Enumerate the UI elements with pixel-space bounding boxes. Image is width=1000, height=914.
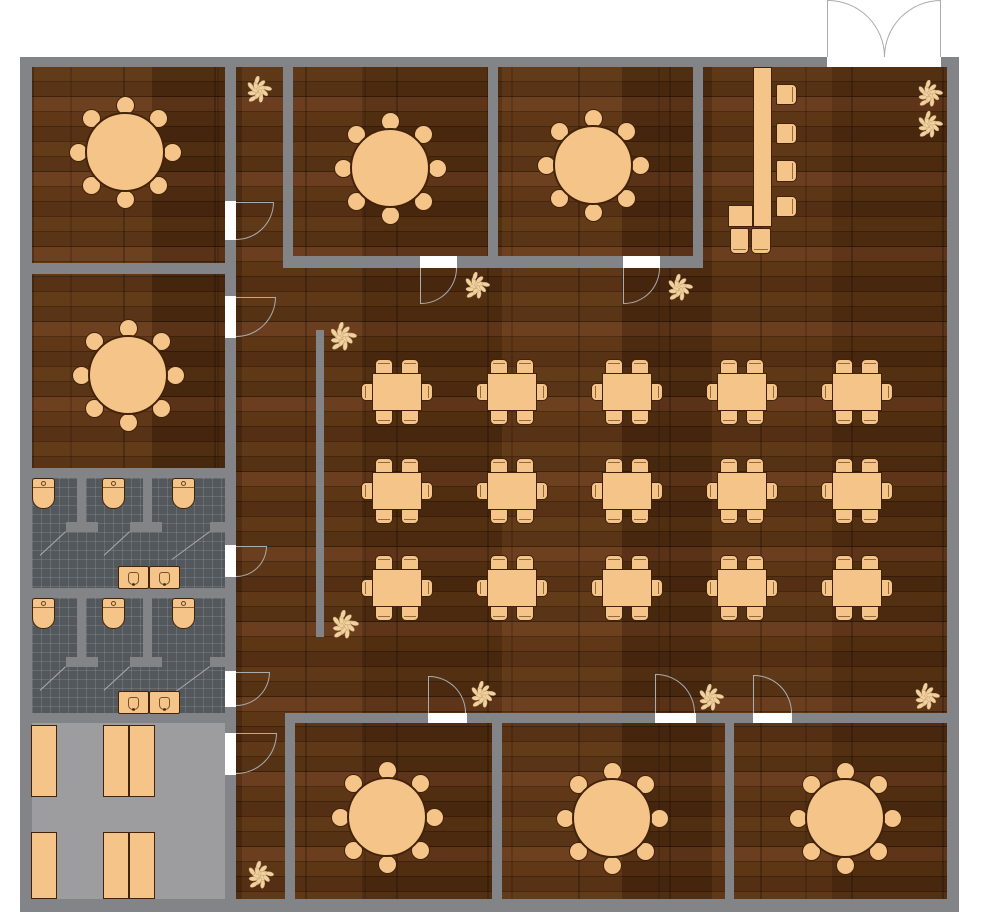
chair[interactable]	[116, 190, 135, 209]
dining-table-6-seat[interactable]	[340, 441, 454, 541]
kitchen-shelf[interactable]	[129, 832, 155, 899]
private-room-a-table[interactable]	[332, 110, 448, 226]
chair-back-line	[608, 420, 620, 421]
chair-back-line	[749, 420, 761, 421]
toilet-tank-line	[33, 607, 54, 608]
round-table-top	[85, 112, 165, 192]
bottom-rooms-north-wall-2	[467, 713, 655, 723]
chair[interactable]	[650, 809, 669, 828]
entry-door-right-leaf-leaf[interactable]	[940, 0, 941, 57]
chair-back-line	[634, 363, 646, 364]
chair-back-line	[428, 386, 429, 398]
chair-back-line	[864, 462, 876, 463]
chair-back-line	[888, 582, 889, 594]
room-23-divider-wall	[725, 723, 734, 899]
chair-back-line	[825, 386, 826, 398]
toilet-tank-line	[173, 487, 194, 488]
toilet-flush-knob	[41, 481, 46, 486]
dining-table-6-seat[interactable]	[570, 441, 684, 541]
chair-back-line	[792, 126, 793, 141]
toilet-flush-knob	[181, 601, 186, 606]
sink-faucet-dot	[163, 708, 166, 711]
r2-stall-front-1	[66, 657, 98, 667]
chair-back-line	[864, 519, 876, 520]
chair-back-line	[404, 420, 416, 421]
sink-unit[interactable]	[118, 691, 149, 714]
dining-table-6-seat[interactable]	[455, 538, 569, 638]
chair-back-line	[608, 462, 620, 463]
room-ab-south-wall-2	[457, 256, 623, 268]
door-opening	[225, 671, 236, 707]
plant-leaves	[329, 610, 360, 641]
kitchen-shelf[interactable]	[31, 832, 57, 899]
chair[interactable]	[425, 808, 444, 827]
chair-back-line	[723, 519, 735, 520]
bottom-rooms-north-wall-4	[792, 713, 947, 723]
sink-unit[interactable]	[149, 566, 180, 589]
dining-table-6-seat[interactable]	[340, 342, 454, 442]
corridor-wall-3	[225, 338, 236, 545]
sink-faucet-dot	[163, 583, 166, 586]
plant-leaves	[468, 681, 497, 710]
chair-back-line	[838, 420, 850, 421]
bar-stool[interactable]	[730, 228, 749, 254]
private-room-b-table[interactable]	[535, 107, 651, 223]
chair-back-line	[365, 485, 366, 497]
r2-stall-front-3	[210, 657, 236, 667]
kitchen-shelf[interactable]	[129, 725, 155, 797]
chair-back-line	[634, 420, 646, 421]
table-top	[602, 472, 652, 510]
chair-back-line	[404, 363, 416, 364]
chair[interactable]	[631, 156, 650, 175]
bar-stool[interactable]	[751, 228, 771, 254]
plant-icon[interactable]	[912, 683, 941, 712]
chair[interactable]	[883, 809, 902, 828]
room-1-door-leaf[interactable]	[428, 676, 429, 713]
plant-icon[interactable]	[915, 111, 944, 140]
chair-back-line	[792, 163, 793, 179]
bar-stool[interactable]	[776, 84, 797, 105]
plant-icon[interactable]	[468, 681, 497, 710]
topleft-room-south-wall	[20, 263, 236, 274]
chair-back-line	[378, 363, 390, 364]
chair-back-line	[710, 582, 711, 594]
chair-back-line	[723, 420, 735, 421]
outer-wall-right	[947, 57, 959, 912]
kitchen-north-wall	[20, 713, 236, 723]
toilet-tank-line	[173, 607, 194, 608]
chair-back-line	[749, 519, 761, 520]
door-opening	[225, 545, 236, 577]
chair[interactable]	[836, 856, 855, 875]
midleft-room-door-leaf[interactable]	[236, 297, 276, 298]
chair-back-line	[404, 519, 416, 520]
chair-back-line	[864, 559, 876, 560]
chair-back-line	[543, 485, 544, 497]
room-b-door-leaf[interactable]	[623, 268, 624, 304]
chair-back-line	[519, 559, 531, 560]
plant-icon[interactable]	[665, 274, 694, 303]
toilet[interactable]	[32, 478, 55, 509]
midleft-room-south-wall	[20, 468, 236, 478]
chair-back-line	[838, 462, 850, 463]
toilet-tank-line	[103, 607, 124, 608]
plant-leaves	[327, 322, 358, 353]
chair-back-line	[543, 386, 544, 398]
room-a-west-wall	[283, 67, 293, 256]
dining-table-6-seat[interactable]	[570, 342, 684, 442]
door-opening	[623, 256, 660, 268]
chair-back-line	[634, 519, 646, 520]
table-top	[372, 472, 422, 510]
chair-back-line	[428, 485, 429, 497]
chair-back-line	[773, 386, 774, 398]
dining-table-6-seat[interactable]	[685, 538, 799, 638]
r1-stall-front-3	[210, 522, 236, 532]
toilet[interactable]	[102, 478, 125, 509]
room-ab-south-wall-1	[283, 256, 420, 268]
chair-back-line	[608, 363, 620, 364]
door-opening	[225, 733, 236, 775]
private-room-s3-table[interactable]	[787, 760, 903, 876]
plant-icon[interactable]	[245, 861, 275, 891]
chair-back-line	[710, 485, 711, 497]
table-top	[487, 472, 537, 510]
chair-back-line	[733, 249, 746, 250]
r1-stall-front-1	[66, 522, 98, 532]
dining-table-6-seat[interactable]	[455, 342, 569, 442]
plant-icon[interactable]	[329, 610, 360, 641]
dining-table-6-seat[interactable]	[800, 342, 914, 442]
toilet[interactable]	[172, 598, 195, 629]
chair-back-line	[519, 420, 531, 421]
table-top	[717, 472, 767, 510]
sink-unit[interactable]	[118, 566, 149, 589]
toilet-tank-line	[33, 487, 54, 488]
chair-back-line	[864, 616, 876, 617]
chair-back-line	[493, 519, 505, 520]
round-table-top	[572, 778, 652, 858]
plant-icon[interactable]	[244, 76, 273, 105]
outer-wall-bottom	[20, 899, 959, 912]
bar-stool[interactable]	[776, 160, 797, 182]
chair-back-line	[749, 559, 761, 560]
round-table-top	[88, 335, 168, 415]
room-b-east-wall	[693, 67, 703, 268]
chair[interactable]	[584, 203, 603, 222]
chair[interactable]	[603, 856, 622, 875]
table-top	[602, 569, 652, 607]
chair-back-line	[773, 485, 774, 497]
sink-faucet-dot	[132, 583, 135, 586]
chair-back-line	[634, 462, 646, 463]
door-opening	[225, 296, 236, 338]
dining-table-6-seat[interactable]	[685, 441, 799, 541]
room-3-door-leaf[interactable]	[753, 675, 754, 713]
chair-back-line	[493, 420, 505, 421]
chair-back-line	[519, 519, 531, 520]
chair-back-line	[658, 386, 659, 398]
chair-back-line	[658, 485, 659, 497]
chair-back-line	[480, 582, 481, 594]
dining-table-6-seat[interactable]	[570, 538, 684, 638]
chair-back-line	[773, 582, 774, 594]
private-room-nw-table[interactable]	[67, 94, 183, 210]
chair-back-line	[519, 462, 531, 463]
toilet-flush-knob	[111, 481, 116, 486]
chair-back-line	[608, 616, 620, 617]
chair-back-line	[723, 559, 735, 560]
chair-back-line	[595, 485, 596, 497]
chair-back-line	[754, 249, 768, 250]
chair-back-line	[519, 363, 531, 364]
plant-leaves	[915, 111, 944, 140]
kitchen-door-leaf[interactable]	[236, 733, 277, 734]
kitchen-shelf[interactable]	[31, 725, 57, 797]
bar-counter-main[interactable]	[753, 67, 772, 227]
toilet-flush-knob	[181, 481, 186, 486]
table-top	[832, 569, 882, 607]
bottom-rooms-north-wall-1	[287, 713, 428, 723]
chair-back-line	[493, 616, 505, 617]
door-opening	[225, 201, 236, 240]
entry-door-right-leaf[interactable]	[884, 0, 941, 57]
table-top	[372, 569, 422, 607]
sink-faucet-dot	[132, 708, 135, 711]
dining-table-6-seat[interactable]	[800, 441, 914, 541]
plant-leaves	[462, 272, 491, 301]
chair-back-line	[825, 485, 826, 497]
plant-icon[interactable]	[915, 80, 944, 109]
chair-back-line	[838, 559, 850, 560]
corridor-wall-1	[225, 67, 236, 201]
toilet-flush-knob	[111, 601, 116, 606]
chair-back-line	[493, 559, 505, 560]
bar-stool[interactable]	[776, 196, 797, 217]
entry-door-left-leaf[interactable]	[828, 0, 885, 57]
chair-back-line	[493, 462, 505, 463]
room-12-divider-wall	[492, 723, 502, 899]
plant-leaves	[244, 76, 273, 105]
r2-stall-front-2	[130, 657, 162, 667]
private-room-s2-table[interactable]	[554, 760, 670, 876]
chair-back-line	[864, 363, 876, 364]
table-top	[832, 472, 882, 510]
chair-back-line	[404, 616, 416, 617]
plant-leaves	[245, 861, 275, 891]
round-table-top	[350, 128, 430, 208]
entry-door-left-leaf-leaf[interactable]	[827, 0, 828, 57]
dining-table-6-seat[interactable]	[455, 441, 569, 541]
table-top	[372, 373, 422, 411]
chair[interactable]	[163, 143, 182, 162]
chair[interactable]	[378, 855, 397, 874]
room-a-door-leaf[interactable]	[420, 268, 421, 304]
toilet[interactable]	[172, 478, 195, 509]
chair-back-line	[723, 462, 735, 463]
dining-table-6-seat[interactable]	[800, 538, 914, 638]
plant-leaves	[696, 684, 725, 713]
private-room-w-table[interactable]	[70, 317, 186, 433]
chair-back-line	[428, 582, 429, 594]
restaurant-floor-plan	[0, 0, 1000, 914]
table-top	[602, 373, 652, 411]
chair-back-line	[749, 462, 761, 463]
chair-back-line	[838, 363, 850, 364]
door-opening	[827, 57, 941, 67]
chair-back-line	[378, 559, 390, 560]
chair-back-line	[723, 363, 735, 364]
chair-back-line	[493, 363, 505, 364]
chair-back-line	[543, 582, 544, 594]
round-table-top	[805, 778, 885, 858]
chair-back-line	[365, 386, 366, 398]
chair[interactable]	[166, 366, 185, 385]
chair-back-line	[838, 519, 850, 520]
plant-icon[interactable]	[462, 272, 491, 301]
table-top	[487, 569, 537, 607]
toilet-tank-line	[103, 487, 124, 488]
bar-stool[interactable]	[776, 123, 797, 144]
plant-icon[interactable]	[327, 322, 358, 353]
toilet-flush-knob	[41, 601, 46, 606]
chair-back-line	[792, 199, 793, 214]
chair-back-line	[404, 559, 416, 560]
restroom-divider-wall	[20, 588, 236, 598]
chair-back-line	[658, 582, 659, 594]
chair-back-line	[634, 616, 646, 617]
sink-unit[interactable]	[149, 691, 180, 714]
dining-screen-wall	[316, 330, 324, 637]
door-opening	[655, 713, 696, 723]
dining-table-6-seat[interactable]	[685, 342, 799, 442]
bar-counter-foot[interactable]	[728, 205, 753, 227]
chair-back-line	[480, 386, 481, 398]
restroom-1-door-leaf[interactable]	[236, 546, 267, 547]
r1-stall-front-2	[130, 522, 162, 532]
kitchen-shelf[interactable]	[103, 725, 129, 797]
chair-back-line	[404, 462, 416, 463]
room-1-west-wall	[285, 713, 295, 899]
round-table-top	[347, 777, 427, 857]
chair-back-line	[825, 582, 826, 594]
chair-back-line	[378, 462, 390, 463]
restroom-2-door-leaf[interactable]	[236, 672, 270, 673]
chair-back-line	[792, 87, 793, 102]
table-top	[717, 569, 767, 607]
chair-back-line	[378, 616, 390, 617]
door-opening	[753, 713, 792, 723]
room-ab-divider-wall	[488, 67, 498, 256]
chair-back-line	[608, 559, 620, 560]
outer-wall-top-left	[20, 57, 827, 67]
door-opening	[428, 713, 467, 723]
chair-back-line	[595, 386, 596, 398]
private-room-s1-table[interactable]	[329, 759, 445, 875]
table-top	[487, 373, 537, 411]
plant-icon[interactable]	[696, 684, 725, 713]
room-2-door-leaf[interactable]	[655, 674, 656, 713]
round-table-top	[553, 125, 633, 205]
kitchen-shelf[interactable]	[103, 832, 129, 899]
bottom-rooms-north-wall-3	[696, 713, 753, 723]
chair[interactable]	[119, 413, 138, 432]
chair-back-line	[365, 582, 366, 594]
corridor-wall-6	[225, 775, 236, 899]
chair-back-line	[608, 519, 620, 520]
chair-back-line	[378, 519, 390, 520]
chair-back-line	[710, 386, 711, 398]
chair-back-line	[634, 559, 646, 560]
chair-back-line	[519, 616, 531, 617]
chair-back-line	[888, 386, 889, 398]
door-opening	[420, 256, 457, 268]
chair[interactable]	[428, 159, 447, 178]
plant-leaves	[665, 274, 694, 303]
chair-back-line	[723, 616, 735, 617]
chair-back-line	[749, 616, 761, 617]
chair[interactable]	[381, 206, 400, 225]
chair-back-line	[749, 363, 761, 364]
chair-back-line	[595, 582, 596, 594]
table-top	[717, 373, 767, 411]
chair-back-line	[838, 616, 850, 617]
plant-leaves	[912, 683, 941, 712]
toilet[interactable]	[102, 598, 125, 629]
chair-back-line	[864, 420, 876, 421]
toilet[interactable]	[32, 598, 55, 629]
topleft-room-door-leaf[interactable]	[236, 202, 274, 203]
chair-back-line	[888, 485, 889, 497]
chair-back-line	[480, 485, 481, 497]
table-top	[832, 373, 882, 411]
plant-leaves	[915, 80, 944, 109]
chair-back-line	[378, 420, 390, 421]
